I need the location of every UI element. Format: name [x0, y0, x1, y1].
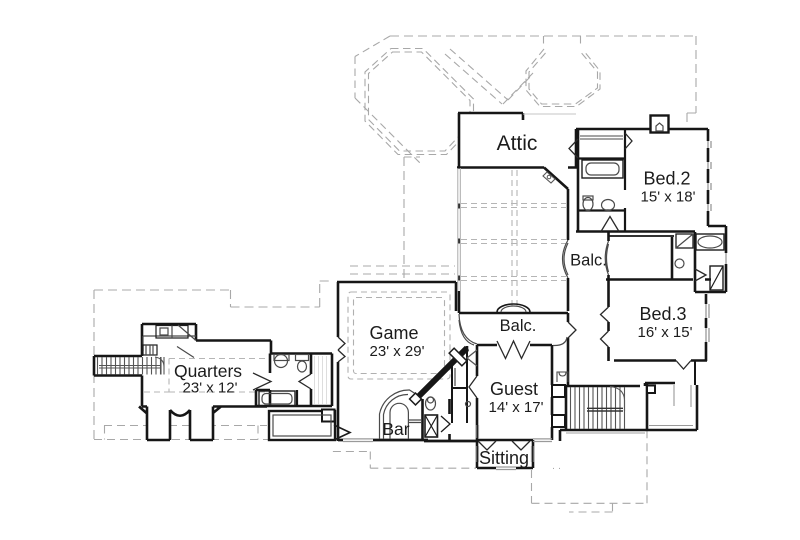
svg-text:23' x 29': 23' x 29': [370, 343, 425, 360]
svg-text:Sitting: Sitting: [479, 448, 529, 468]
svg-text:16' x 15': 16' x 15': [638, 324, 693, 341]
svg-text:Game: Game: [369, 323, 418, 343]
svg-text:Balc.: Balc.: [500, 317, 537, 335]
svg-text:Quarters: Quarters: [174, 361, 242, 381]
svg-text:14' x 17': 14' x 17': [489, 399, 544, 416]
svg-text:23' x 12': 23' x 12': [183, 380, 238, 397]
svg-text:Guest: Guest: [490, 379, 538, 399]
svg-text:Balc.: Balc.: [570, 252, 607, 270]
svg-text:Attic: Attic: [497, 132, 538, 155]
svg-text:Bar: Bar: [382, 419, 409, 439]
svg-text:Bed.2: Bed.2: [643, 169, 690, 189]
svg-text:15' x 18': 15' x 18': [641, 189, 696, 206]
svg-text:Bed.3: Bed.3: [639, 304, 686, 324]
